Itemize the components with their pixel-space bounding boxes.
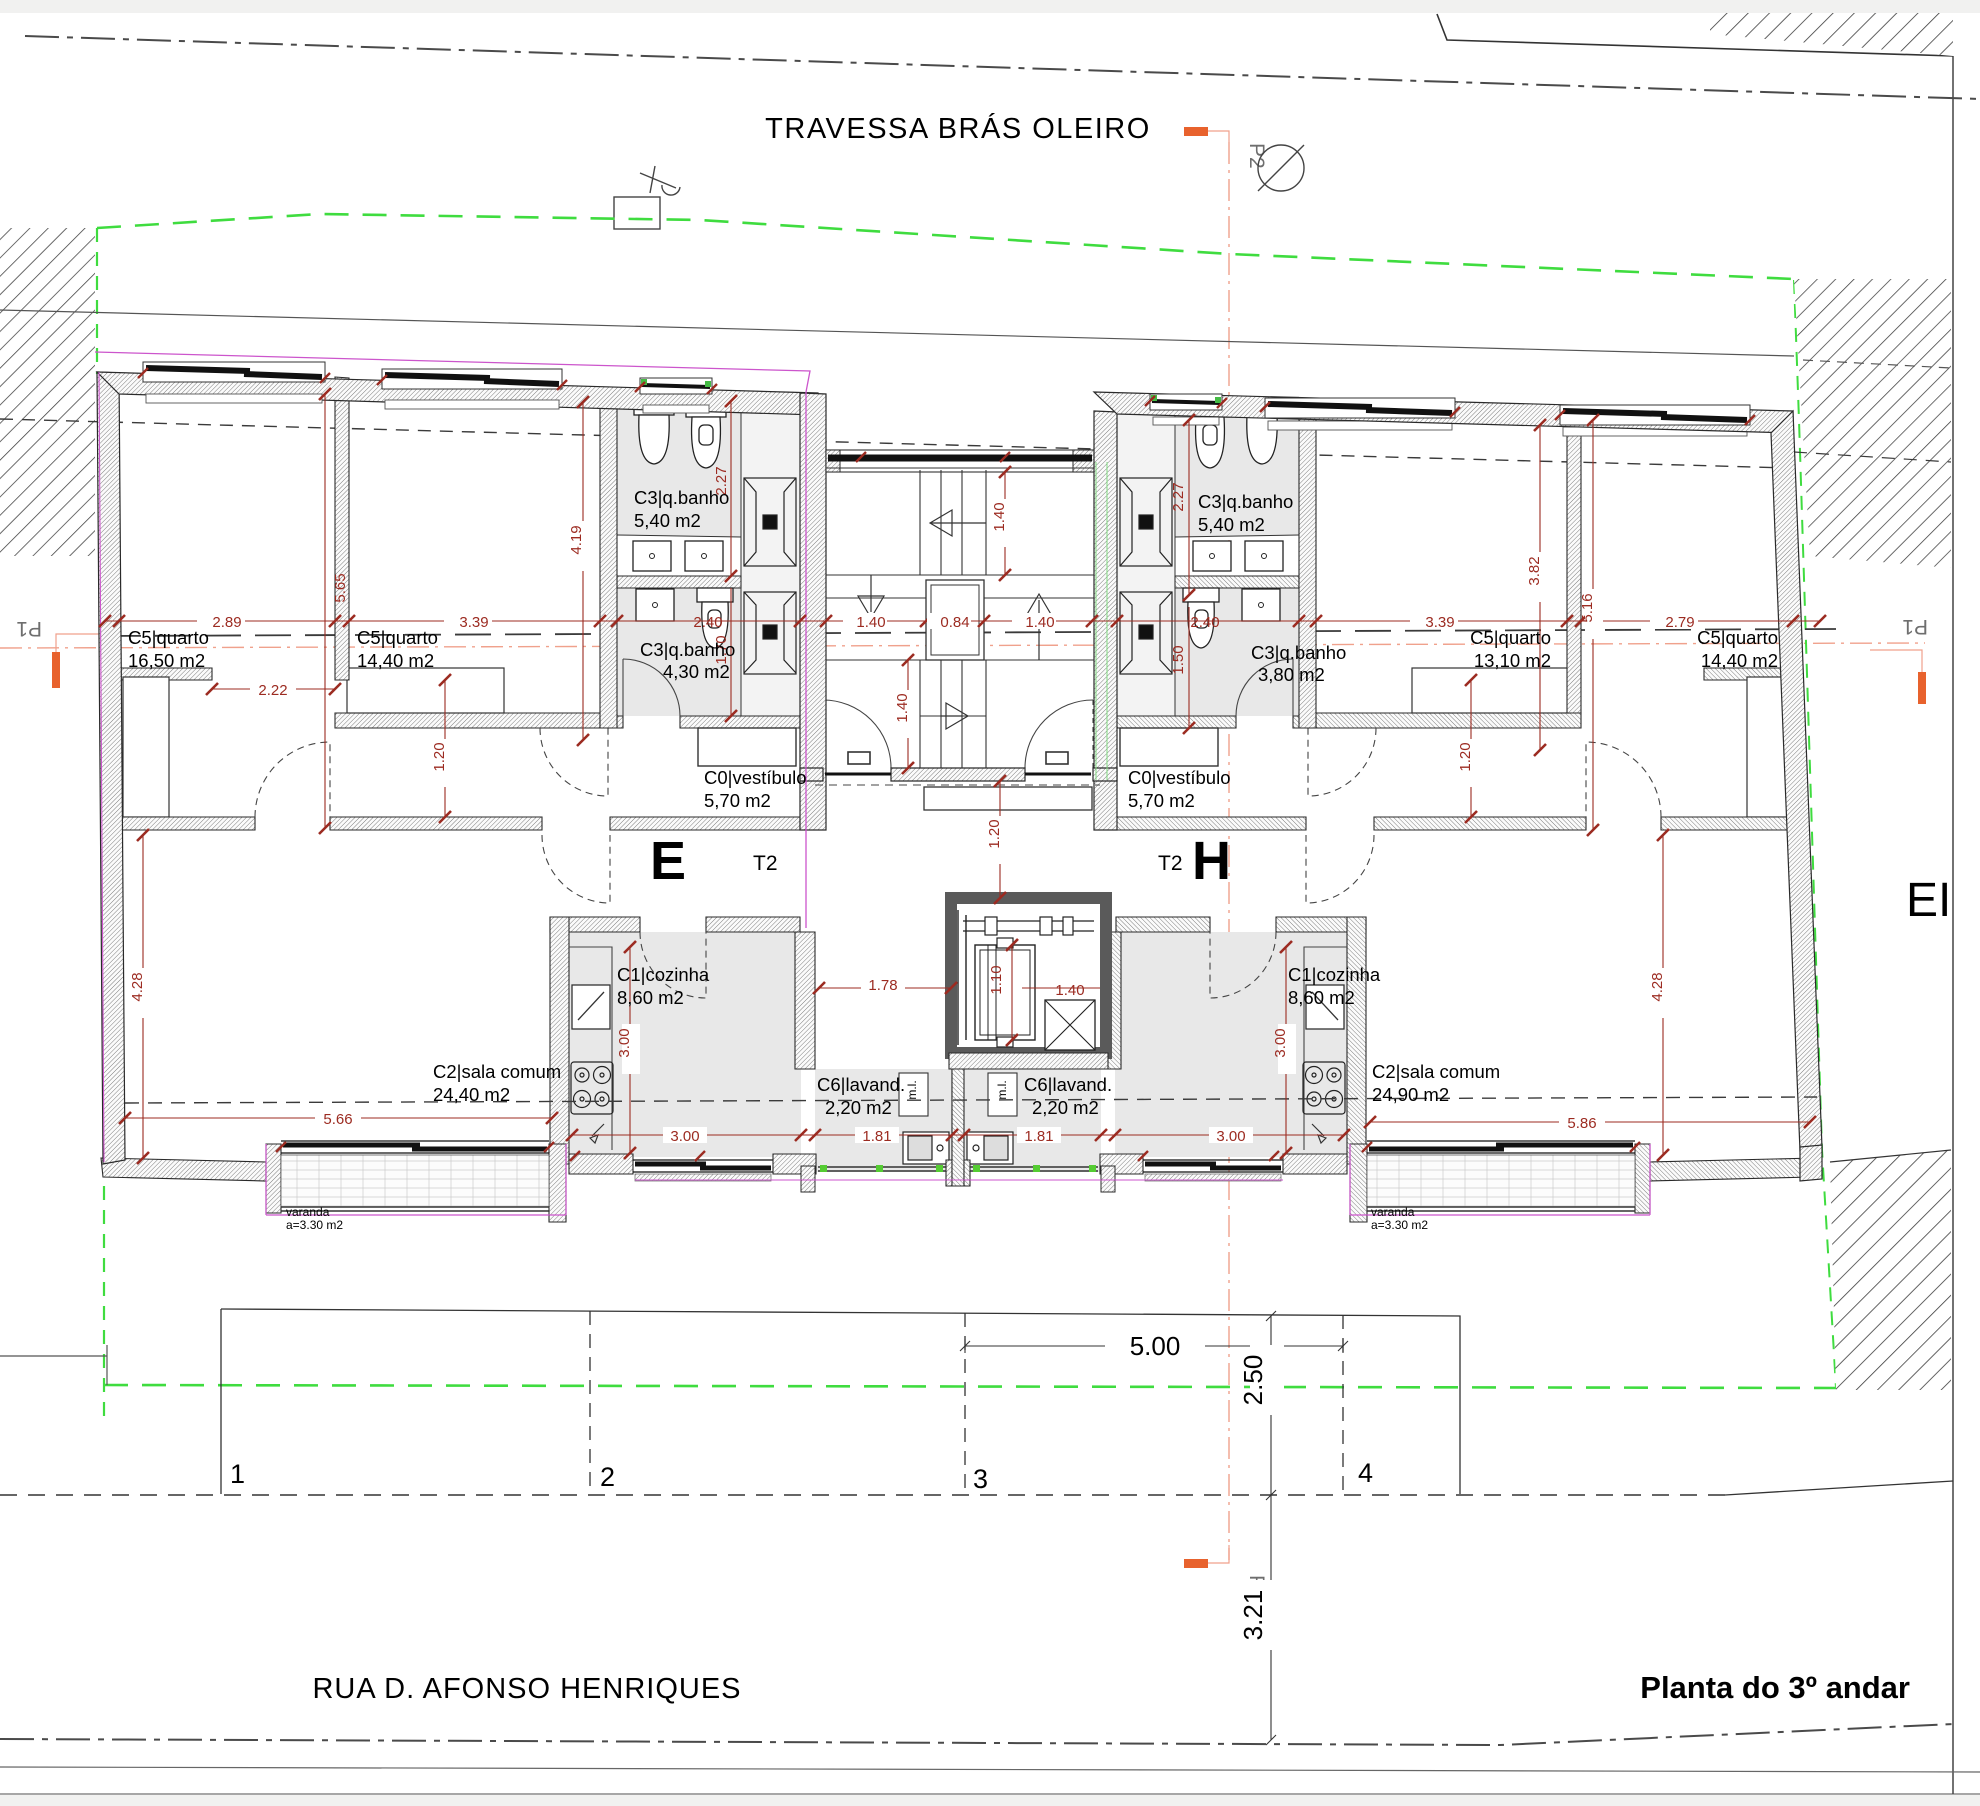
svg-text:2.89: 2.89 (212, 614, 241, 631)
svg-text:C6|lavand.: C6|lavand. (1024, 1074, 1112, 1095)
svg-text:C1|cozinha: C1|cozinha (1288, 964, 1381, 985)
svg-text:2.40: 2.40 (1190, 614, 1219, 631)
svg-text:24,90 m2: 24,90 m2 (1372, 1084, 1449, 1105)
svg-text:5,70 m2: 5,70 m2 (704, 790, 771, 811)
svg-text:8,60 m2: 8,60 m2 (617, 987, 684, 1008)
svg-text:4.28: 4.28 (129, 972, 146, 1001)
svg-text:4,30 m2: 4,30 m2 (663, 661, 730, 682)
svg-text:a=3.30 m2: a=3.30 m2 (1371, 1218, 1428, 1232)
svg-text:E: E (650, 831, 686, 891)
svg-text:1.40: 1.40 (894, 693, 911, 722)
svg-text:2.40: 2.40 (693, 614, 722, 631)
svg-text:2.22: 2.22 (258, 682, 287, 699)
svg-text:3.39: 3.39 (459, 614, 488, 631)
svg-text:3.39: 3.39 (1425, 614, 1454, 631)
svg-text:C3|q.banho: C3|q.banho (640, 639, 735, 660)
svg-text:C0|vestíbulo: C0|vestíbulo (1128, 767, 1231, 788)
svg-text:3.00: 3.00 (1216, 1128, 1245, 1145)
svg-text:1.81: 1.81 (862, 1128, 891, 1145)
svg-text:5.66: 5.66 (323, 1111, 352, 1128)
svg-text:C3|q.banho: C3|q.banho (1251, 642, 1346, 663)
svg-text:14,40 m2: 14,40 m2 (357, 650, 434, 671)
svg-text:H: H (1192, 831, 1231, 891)
svg-text:14,40 m2: 14,40 m2 (1701, 650, 1778, 671)
svg-text:m.l.: m.l. (905, 1080, 919, 1099)
svg-text:1.10: 1.10 (988, 965, 1005, 994)
svg-text:1.40: 1.40 (1055, 982, 1084, 999)
svg-text:1.40: 1.40 (856, 614, 885, 631)
svg-text:C5|quarto: C5|quarto (1697, 627, 1778, 648)
svg-text:2: 2 (600, 1462, 615, 1492)
svg-text:TRAVESSA BRÁS OLEIRO: TRAVESSA BRÁS OLEIRO (765, 112, 1151, 145)
svg-text:varanda: varanda (286, 1205, 330, 1219)
svg-text:5,70 m2: 5,70 m2 (1128, 790, 1195, 811)
svg-text:3.00: 3.00 (1272, 1028, 1289, 1057)
svg-text:4: 4 (1358, 1458, 1373, 1488)
svg-text:1.20: 1.20 (1457, 742, 1474, 771)
svg-text:1.40: 1.40 (991, 502, 1008, 531)
svg-text:C5|quarto: C5|quarto (1470, 627, 1551, 648)
svg-text:m.l.: m.l. (995, 1080, 1009, 1099)
svg-text:3.82: 3.82 (1526, 556, 1543, 585)
svg-text:3,80 m2: 3,80 m2 (1258, 664, 1325, 685)
svg-text:3: 3 (973, 1464, 988, 1494)
svg-text:C1|cozinha: C1|cozinha (617, 964, 710, 985)
svg-text:5.16: 5.16 (1579, 593, 1596, 622)
svg-text:1.40: 1.40 (1025, 614, 1054, 631)
svg-text:3.00: 3.00 (670, 1128, 699, 1145)
svg-text:5.65: 5.65 (332, 573, 349, 602)
svg-text:2,20 m2: 2,20 m2 (1032, 1097, 1099, 1118)
svg-text:5.86: 5.86 (1567, 1115, 1596, 1132)
svg-text:P1: P1 (1902, 615, 1928, 638)
svg-text:5,40 m2: 5,40 m2 (1198, 514, 1265, 535)
svg-text:1.20: 1.20 (986, 819, 1003, 848)
svg-text:1.50: 1.50 (1170, 645, 1187, 674)
svg-text:2.79: 2.79 (1665, 614, 1694, 631)
svg-text:3.00: 3.00 (616, 1028, 633, 1057)
svg-text:P2: P2 (1245, 143, 1268, 169)
svg-text:4.19: 4.19 (568, 525, 585, 554)
svg-text:16,50 m2: 16,50 m2 (128, 650, 205, 671)
svg-text:3.21: 3.21 (1238, 1590, 1268, 1641)
svg-text:EI: EI (1906, 874, 1951, 927)
svg-text:2.50: 2.50 (1238, 1355, 1268, 1406)
svg-text:C2|sala comum: C2|sala comum (1372, 1061, 1500, 1082)
svg-text:1.20: 1.20 (431, 742, 448, 771)
svg-text:5.00: 5.00 (1130, 1331, 1181, 1361)
svg-text:C0|vestíbulo: C0|vestíbulo (704, 767, 807, 788)
svg-text:varanda: varanda (1371, 1205, 1415, 1219)
svg-text:C5|quarto: C5|quarto (357, 627, 438, 648)
svg-text:T2: T2 (1158, 852, 1183, 875)
svg-text:C3|q.banho: C3|q.banho (634, 487, 729, 508)
svg-text:1.81: 1.81 (1024, 1128, 1053, 1145)
svg-text:T2: T2 (753, 852, 778, 875)
svg-text:5,40 m2: 5,40 m2 (634, 510, 701, 531)
svg-text:a=3.30 m2: a=3.30 m2 (286, 1218, 343, 1232)
svg-text:13,10 m2: 13,10 m2 (1474, 650, 1551, 671)
svg-text:P1: P1 (16, 617, 42, 640)
svg-text:1: 1 (230, 1459, 245, 1489)
svg-text:C3|q.banho: C3|q.banho (1198, 491, 1293, 512)
svg-text:2.27: 2.27 (1170, 482, 1187, 511)
svg-text:RUA D. AFONSO HENRIQUES: RUA D. AFONSO HENRIQUES (312, 1673, 741, 1705)
svg-text:C2|sala comum: C2|sala comum (433, 1061, 561, 1082)
svg-text:C5|quarto: C5|quarto (128, 627, 209, 648)
svg-text:2,20 m2: 2,20 m2 (825, 1097, 892, 1118)
svg-text:24,40 m2: 24,40 m2 (433, 1084, 510, 1105)
svg-text:1.78: 1.78 (868, 977, 897, 994)
svg-text:8,60 m2: 8,60 m2 (1288, 987, 1355, 1008)
svg-text:Planta do 3º andar: Planta do 3º andar (1640, 1670, 1910, 1705)
svg-text:4.28: 4.28 (1649, 972, 1666, 1001)
svg-text:C6|lavand.: C6|lavand. (817, 1074, 905, 1095)
svg-text:0.84: 0.84 (940, 614, 969, 631)
